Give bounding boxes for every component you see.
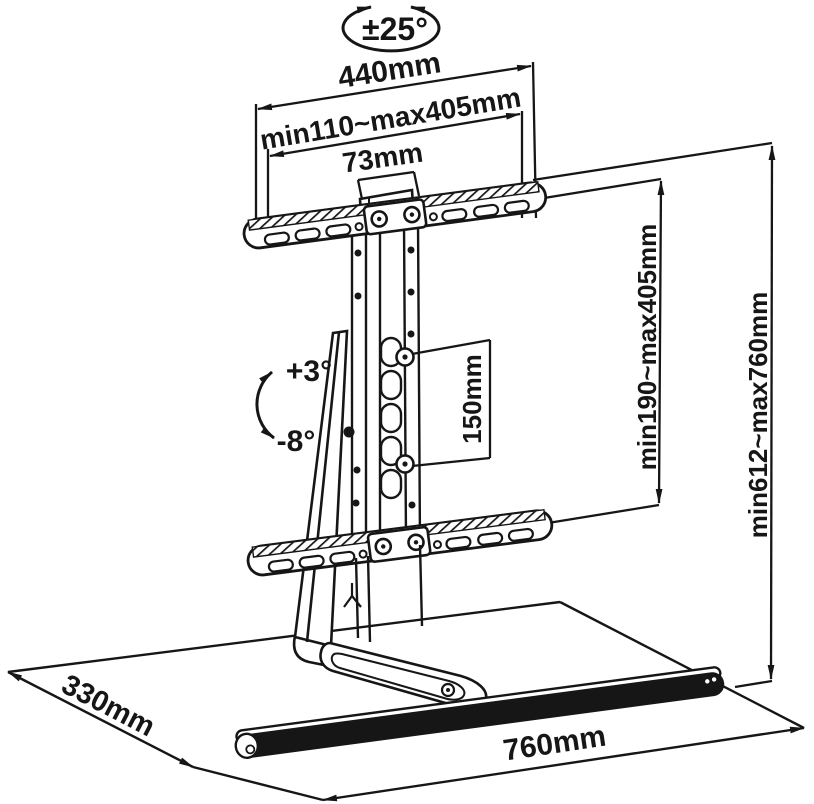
vesa-height-range-label: min190~max405mm bbox=[632, 224, 662, 470]
tick-150-top bbox=[412, 340, 490, 354]
column-slot bbox=[381, 404, 401, 432]
end-cap-hole bbox=[246, 745, 255, 754]
cable-mark bbox=[344, 583, 361, 607]
column-lower-edge bbox=[420, 545, 422, 626]
slot-travel-label: 150mm bbox=[457, 354, 487, 444]
extension-line-outer-top bbox=[533, 143, 772, 180]
column-lower-edge bbox=[368, 556, 370, 642]
tilt-down-label: -8° bbox=[277, 425, 316, 458]
extension-line-outer-bottom bbox=[735, 681, 772, 687]
floor-edge-front-left bbox=[193, 767, 323, 800]
tick-73-right bbox=[414, 172, 419, 196]
foot-screw-dot bbox=[446, 688, 450, 692]
tv-stand-diagram: ±25° 440mm min110~max405mm 73mm +3° -8° … bbox=[0, 0, 814, 804]
floor-edge-back bbox=[8, 602, 560, 672]
screw-dot bbox=[402, 461, 407, 466]
tilt-up-label: +3° bbox=[286, 355, 332, 388]
tick-150-bottom bbox=[412, 458, 490, 466]
tilt-arrow-arc bbox=[257, 372, 274, 438]
extension-line-inner-bottom bbox=[548, 505, 659, 523]
center-column bbox=[344, 190, 423, 558]
pivot-dot bbox=[344, 427, 355, 438]
extension-line-inner-top bbox=[538, 179, 661, 199]
screw-dot bbox=[402, 354, 407, 359]
column-slot bbox=[381, 470, 401, 498]
swivel-angle-label: ±25° bbox=[362, 11, 428, 47]
column-slot bbox=[381, 371, 401, 399]
tv-stand-diagram-page: ±25° 440mm min110~max405mm 73mm +3° -8° … bbox=[0, 0, 814, 804]
tilt-indicator bbox=[257, 372, 274, 438]
base-bar bbox=[234, 666, 725, 759]
column-lower-edge bbox=[356, 558, 358, 638]
total-height-range-label: min612~max760mm bbox=[743, 292, 773, 538]
